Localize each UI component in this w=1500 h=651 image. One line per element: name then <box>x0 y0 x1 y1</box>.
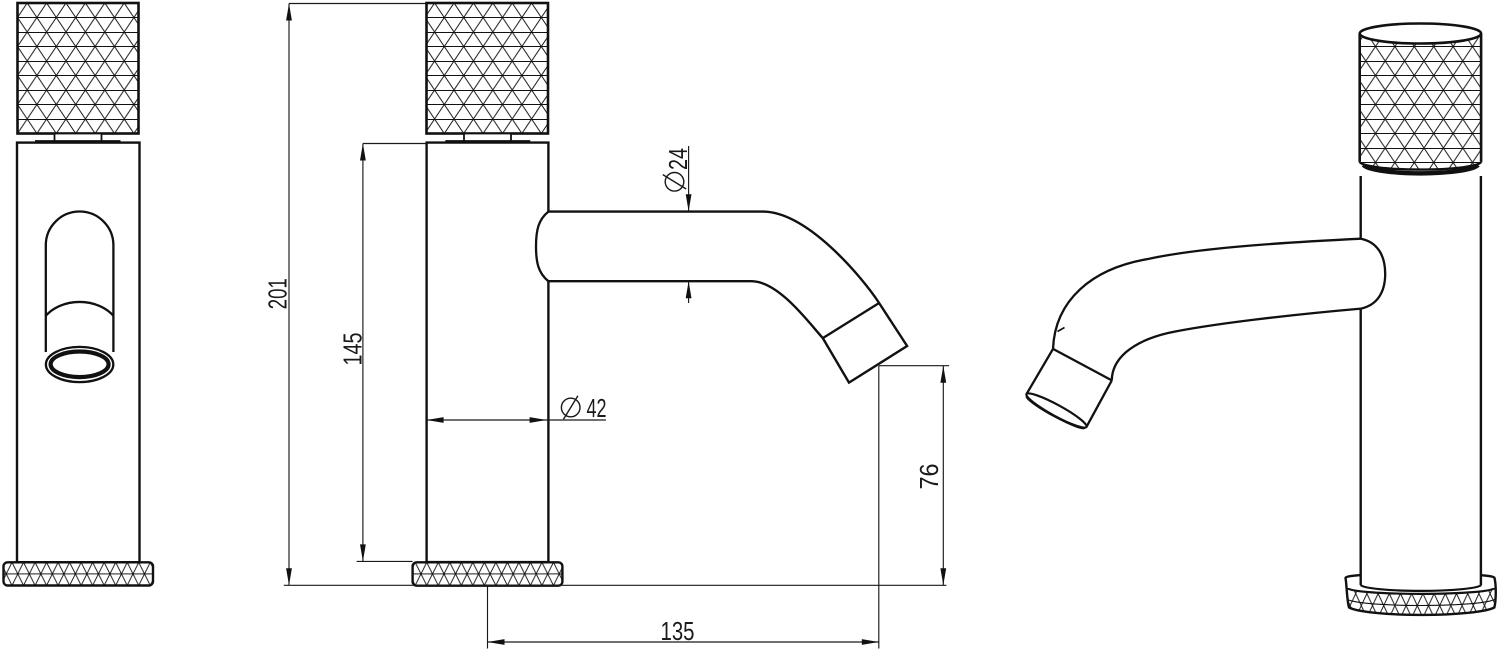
svg-text:42: 42 <box>587 393 607 423</box>
svg-text:135: 135 <box>661 616 695 646</box>
svg-text:24: 24 <box>663 148 693 170</box>
svg-text:76: 76 <box>914 464 944 490</box>
svg-text:201: 201 <box>263 278 293 309</box>
svg-text:145: 145 <box>338 333 368 366</box>
